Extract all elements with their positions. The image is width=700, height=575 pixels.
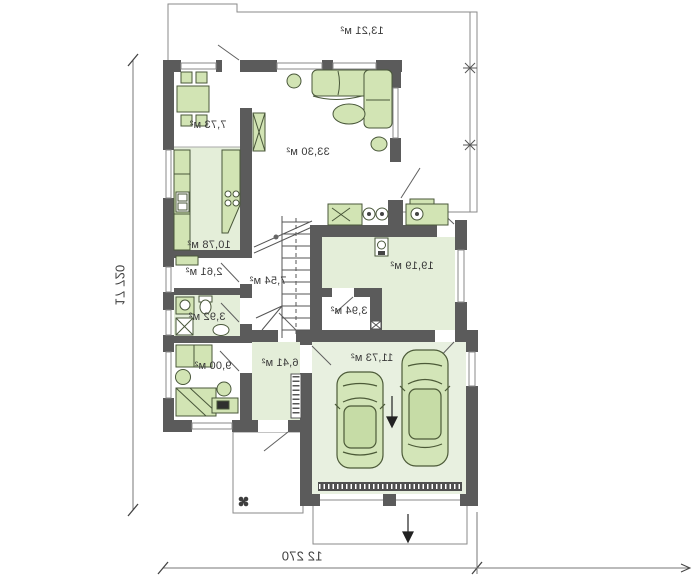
room-label-dining: 7,73 м² (189, 119, 226, 131)
floor-plan-drawing (0, 0, 700, 575)
room-label-vestibule: 6,41 м² (261, 357, 298, 369)
dimension-label-depth: 17 720 (113, 265, 128, 306)
desk-chair (217, 382, 231, 396)
room-label-pantry: 2,61 м² (185, 266, 222, 278)
laptop (217, 401, 229, 409)
room-label-living: 33,30 м² (286, 146, 329, 158)
pouf (287, 74, 301, 88)
room-label-storage: 3,94 м² (330, 305, 367, 317)
room-label-room: 9,00 м² (194, 360, 231, 372)
car-large (400, 350, 450, 466)
room-label-utility: 19,19 м² (390, 260, 433, 272)
room-label-garage: 11,73 м² (351, 352, 394, 364)
dining-table (177, 86, 209, 112)
room-label-terrace: 13,21 м² (340, 25, 383, 37)
room-label-hall: 7,54 м² (249, 275, 286, 287)
utility-floor-lower (382, 288, 455, 330)
pantry-shelf (176, 256, 198, 265)
armchair (176, 370, 191, 385)
room-label-kitchen: 10,78 м² (187, 239, 230, 251)
room-label-bathroom: 3,92 м² (188, 311, 225, 323)
floor-plan-page: 13,21 м² 7,73 м² 33,30 м² 10,78 м² 2,61 … (0, 0, 700, 575)
bathroom-sink (213, 325, 229, 336)
coffee-table (333, 104, 365, 124)
bed (176, 388, 216, 416)
dimension-label-width: 12 270 (282, 549, 323, 564)
pouf (371, 137, 387, 151)
utility-cabinet (328, 204, 362, 225)
car-small (335, 372, 385, 468)
driveway-apron-outline (313, 506, 467, 544)
